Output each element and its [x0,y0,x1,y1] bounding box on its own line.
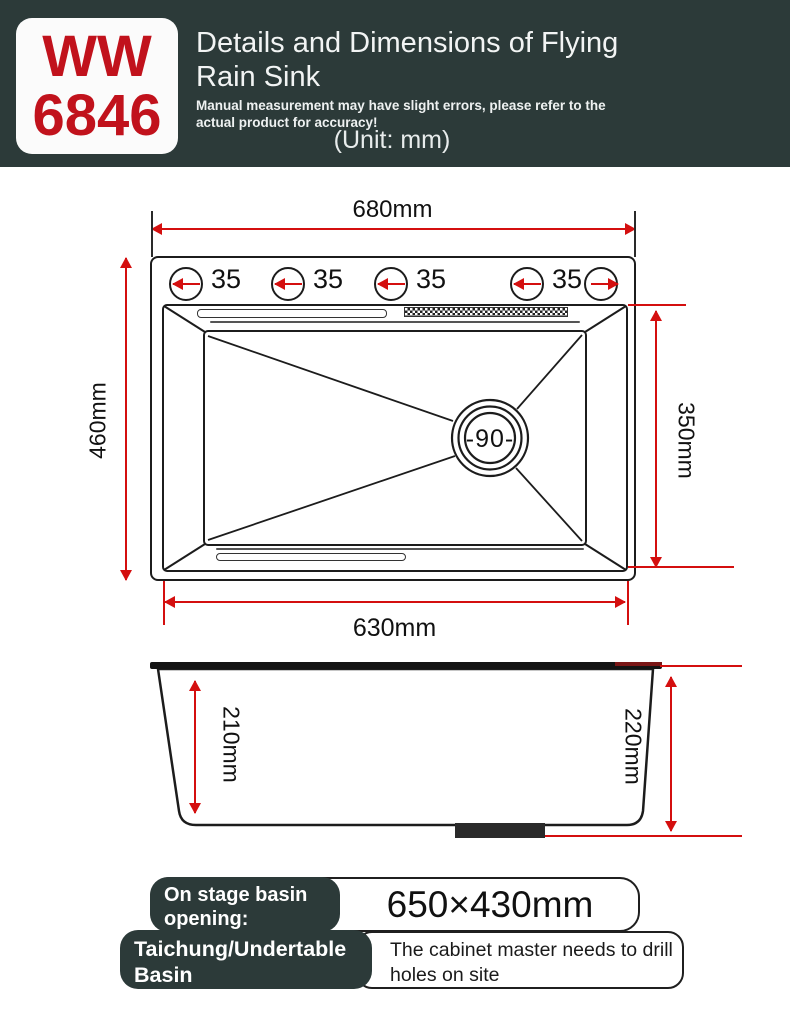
arrowhead-down-icon [189,803,201,814]
arrowhead-left-icon [377,278,388,290]
faucet-hole-4 [510,267,544,301]
hole-diameter-label: 35 [307,264,349,295]
topmount-opening-value: 650×430mm [340,877,640,932]
dim-arrow-right-height [655,311,657,567]
witness-line-red [628,304,686,306]
waterfall-outlet-grille [404,307,568,317]
faucet-hole-1 [169,267,203,301]
radius-arrow-icon [378,283,405,285]
arrowhead-up-icon [650,310,662,321]
side-view-rim [150,662,662,669]
witness-line [634,211,636,257]
top-ledge-line [210,321,580,323]
radius-arrow-icon [173,283,200,285]
faucet-hole-5 [584,267,618,301]
rim-red-overlap [615,662,662,666]
dim-arrow-left-height [125,258,127,580]
arrowhead-left-icon [172,278,183,290]
model-badge: WW 6846 [16,18,178,154]
basin-floor-outline [203,330,587,546]
bottom-ledge-slot [216,553,406,561]
arrowhead-left-icon [151,223,162,235]
arrowhead-up-icon [120,257,132,268]
model-code-line1: WW [42,27,152,86]
witness-line [151,211,153,257]
unit-note: (Unit: mm) [262,126,522,155]
arrowhead-up-icon [665,676,677,687]
undermount-note-box: The cabinet master needs to drill holes … [356,931,684,989]
hole-diameter-label: 35 [205,264,247,295]
dim-label-overall-height: 220mm [620,691,647,803]
topmount-opening-label: On stage basin opening: [150,877,340,932]
arrowhead-down-icon [665,821,677,832]
faucet-hole-2 [271,267,305,301]
side-view-drain-fitting [455,823,545,838]
dim-label-top-width: 680mm [290,196,495,224]
header-banner: WW 6846 Details and Dimensions of Flying… [0,0,790,167]
witness-line-red [660,665,742,667]
arrowhead-down-icon [650,557,662,568]
arrowhead-left-icon [164,596,175,608]
dim-label-inner-depth: 210mm [218,689,245,801]
product-dimension-sheet: WW 6846 Details and Dimensions of Flying… [0,0,790,1010]
dim-arrow-inner-depth [194,681,196,813]
witness-line-red [545,835,742,837]
undermount-opening-label: Taichung/Undertable Basin Openings: [120,930,372,989]
hole-diameter-label: 35 [546,264,588,295]
top-ledge-slot [197,309,387,318]
model-code-line2: 6846 [32,86,161,145]
note-line: The cabinet master needs to drill [390,938,682,963]
dim-arrow-overall-height [670,677,672,831]
dim-arrow-top-width [152,228,635,230]
radius-arrow-icon [275,283,302,285]
dim-arrow-bottom-width [165,601,625,603]
page-title: Details and Dimensions of Flying Rain Si… [196,26,644,94]
arrowhead-left-icon [513,278,524,290]
drain-diameter-label: -90- [457,425,523,454]
label-line: opening: [164,907,340,931]
label-line: Openings: [134,989,372,1010]
note-line: holes on site [390,963,682,988]
dim-label-bottom-width: 630mm [292,614,497,643]
label-line: Taichung/Undertable Basin [134,937,372,989]
dim-label-right-height: 350mm [673,385,700,497]
arrowhead-right-icon [608,278,619,290]
arrowhead-left-icon [274,278,285,290]
radius-arrow-icon [514,283,541,285]
hole-diameter-label: 35 [410,264,452,295]
radius-arrow-icon [591,283,618,285]
arrowhead-right-icon [615,596,626,608]
arrowhead-up-icon [189,680,201,691]
bottom-ledge-line [216,548,584,550]
witness-line-red [628,566,734,568]
dim-label-left-height: 460mm [85,365,112,477]
label-line: On stage basin [164,883,340,907]
faucet-hole-3 [374,267,408,301]
arrowhead-down-icon [120,570,132,581]
witness-line-red [627,581,629,625]
